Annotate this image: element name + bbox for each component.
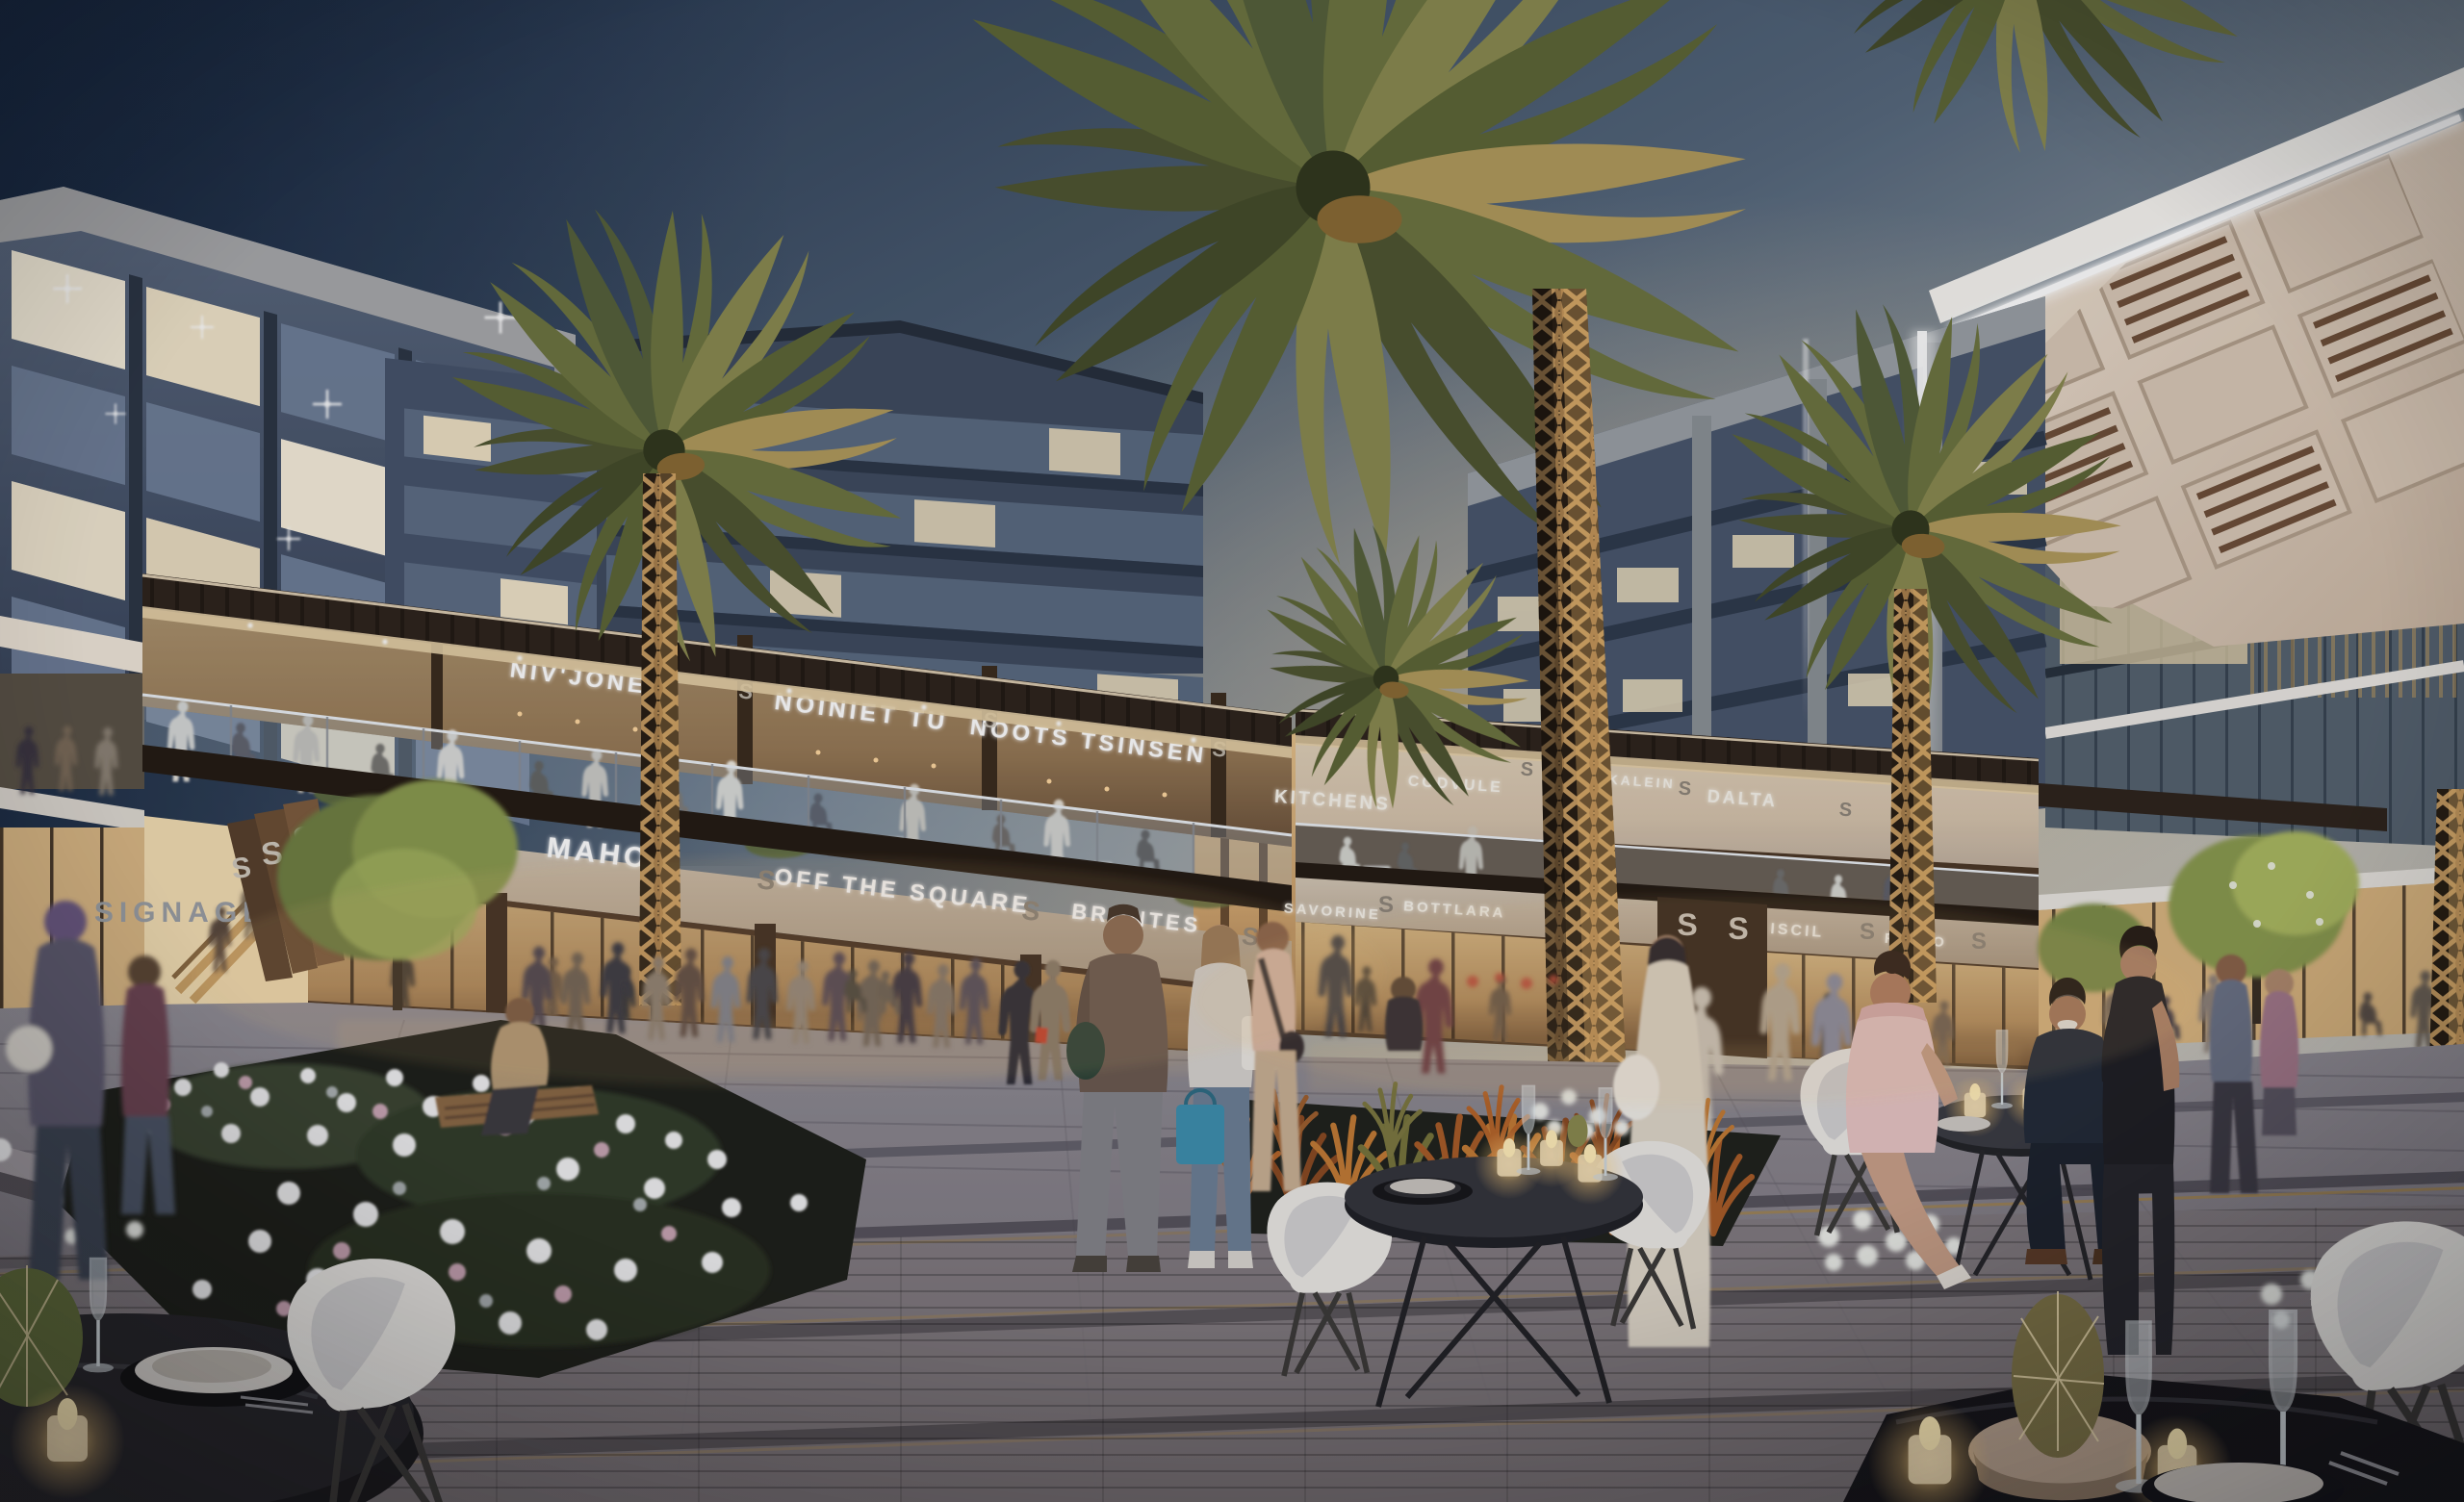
atmosphere-overlays [0,0,2464,1502]
rendered-plaza-scene: NIV'JONE NOINIET TU NOOTS TSINSEN S S S … [0,0,2464,1502]
plaza-illustration: NIV'JONE NOINIET TU NOOTS TSINSEN S S S … [0,0,2464,1502]
